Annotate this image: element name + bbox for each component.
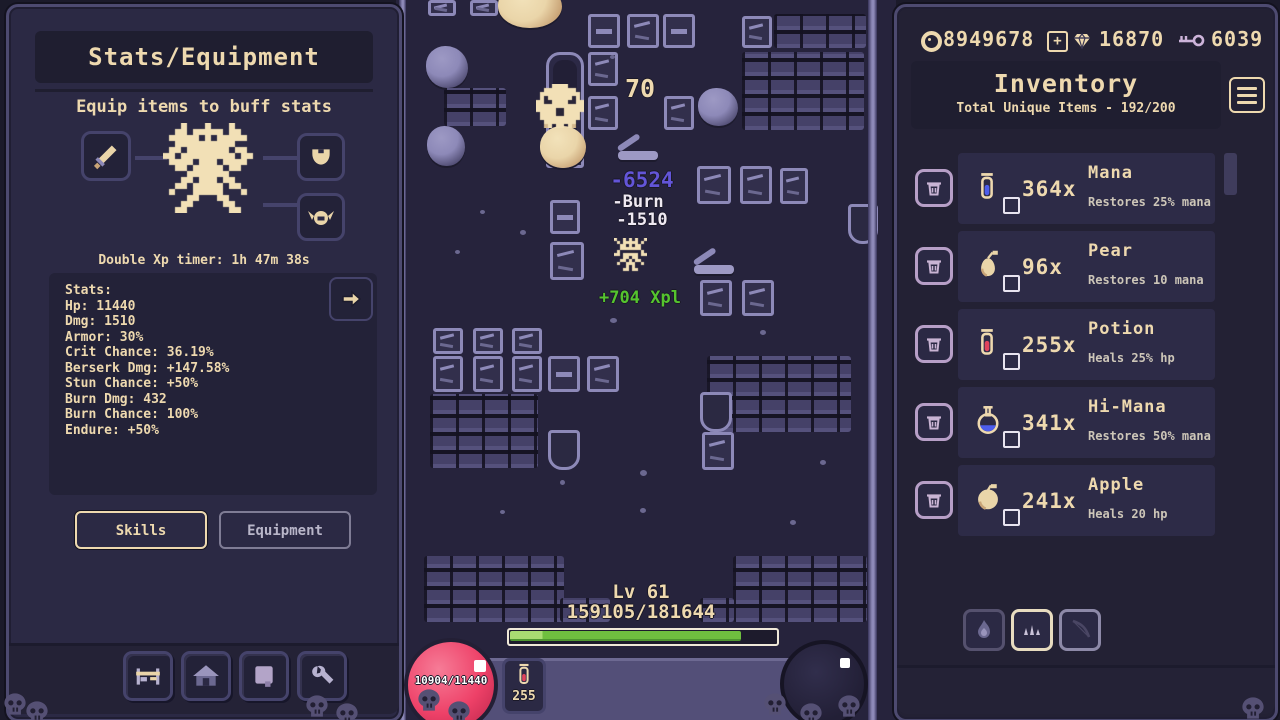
- tile-rockC: [498, 0, 562, 28]
- panel-title: Stats/Equipment: [35, 31, 373, 83]
- trash-item-button[interactable]: [915, 325, 953, 363]
- spikes-icon: [1020, 624, 1044, 636]
- inventory-item-row[interactable]: 241x Apple Heals 20 hp: [958, 465, 1215, 536]
- divider: [35, 89, 373, 92]
- tile-shield: [548, 430, 580, 470]
- skull-icon: [446, 700, 472, 720]
- stat-line: Berserk Dmg: +147.58%: [65, 361, 229, 377]
- tile-sign: [627, 14, 659, 48]
- tile-sign: [702, 432, 734, 470]
- sword-icon: [92, 142, 120, 170]
- tile-peb: [455, 250, 460, 254]
- tile-bar: [548, 356, 580, 392]
- keys-value: 6039: [1211, 27, 1263, 51]
- village-menu-button[interactable]: [181, 651, 231, 701]
- tile-peb: [560, 480, 565, 485]
- tile-cat: [694, 246, 734, 274]
- stats-equipment-panel: Stats/Equipment Equip items to buff stat…: [6, 4, 402, 720]
- orb-sparkle: [840, 658, 850, 668]
- key-icon: [1177, 33, 1205, 48]
- potion-count: 255: [505, 689, 543, 704]
- panel-bottom-strip: [897, 668, 1275, 714]
- trash-item-button[interactable]: [915, 169, 953, 207]
- tile-sign: [700, 280, 732, 316]
- tile-rockP: [426, 46, 468, 88]
- tile-sign: [512, 356, 542, 392]
- trash-icon: [924, 490, 944, 510]
- coins-value: 8949678: [943, 27, 1034, 51]
- inventory-item-row[interactable]: 364x Mana Restores 25% mana: [958, 153, 1215, 224]
- item-count: 96x: [1022, 255, 1063, 279]
- tile-sign: [428, 0, 456, 16]
- chestplate-icon: [308, 146, 334, 168]
- player-character-sprite: [163, 123, 259, 213]
- skull-icon: [334, 702, 360, 720]
- item-count: 241x: [1022, 489, 1077, 513]
- item-description: Heals 20 hp: [1088, 507, 1167, 521]
- item-auto-use-checkbox[interactable]: [1003, 509, 1020, 526]
- potion-icon: [515, 661, 533, 687]
- connector-line: [263, 156, 297, 160]
- skull-icon: [24, 700, 50, 720]
- panel-title-band: Stats/Equipment: [35, 31, 373, 83]
- item-name: Mana: [1088, 163, 1133, 183]
- potion-icon: [975, 327, 1001, 359]
- book-icon: [251, 663, 277, 689]
- house-icon: [192, 663, 220, 689]
- pear-icon: [975, 249, 1001, 281]
- tile-bar: [588, 14, 620, 48]
- inventory-title: Inventory: [911, 69, 1221, 98]
- stats-box: Stats:Hp: 11440Dmg: 1510Armor: 30%Crit C…: [49, 273, 377, 495]
- item-name: Hi-Mana: [1088, 397, 1167, 417]
- crit-damage-text: -6524: [610, 168, 673, 192]
- trash-icon: [924, 334, 944, 354]
- winged-helm-icon: [307, 206, 335, 228]
- tile-peb: [610, 55, 615, 59]
- bench-icon: [134, 663, 162, 689]
- item-auto-use-checkbox[interactable]: [1003, 431, 1020, 448]
- add-currency-button[interactable]: +: [1047, 31, 1068, 52]
- tile-rockC: [540, 126, 586, 168]
- tile-rockP: [698, 88, 738, 126]
- item-auto-use-checkbox[interactable]: [1003, 197, 1020, 214]
- stat-line: Stats:: [65, 283, 229, 299]
- tile-cat: [618, 132, 658, 160]
- gems-value: 16870: [1099, 27, 1164, 51]
- item-count: 255x: [1022, 333, 1077, 357]
- skull-icon: [1240, 696, 1266, 720]
- tile-peb: [790, 520, 796, 525]
- tile-sign: [742, 16, 772, 48]
- tile-peb: [640, 470, 647, 476]
- stat-line: Armor: 30%: [65, 330, 229, 346]
- trash-item-button[interactable]: [915, 247, 953, 285]
- inventory-item-row[interactable]: 341x Hi-Mana Restores 50% mana: [958, 387, 1215, 458]
- stat-line: Crit Chance: 36.19%: [65, 345, 229, 361]
- tile-rockP: [427, 126, 465, 166]
- stats-expand-button[interactable]: [329, 277, 373, 321]
- trash-icon: [924, 256, 944, 276]
- helmet-slot-button[interactable]: [297, 193, 345, 241]
- gem-icon: [1073, 33, 1091, 49]
- item-description: Restores 50% mana: [1088, 429, 1211, 443]
- inventory-scrollbar[interactable]: [1224, 153, 1237, 195]
- item-name: Pear: [1088, 241, 1133, 261]
- tile-bricks: [430, 394, 538, 468]
- tile-sign: [588, 96, 618, 130]
- enemy-hp-number: 70: [625, 74, 655, 103]
- journal-menu-button[interactable]: [239, 651, 289, 701]
- burn-label-text: -Burn: [612, 192, 663, 212]
- game-screen: 70 -6524 -Burn -1510 +704 Xpl Lv 61 1591…: [0, 0, 1280, 720]
- armor-slot-button[interactable]: [297, 133, 345, 181]
- skull-icon: [836, 694, 862, 720]
- trash-item-button[interactable]: [915, 403, 953, 441]
- apple-icon: [975, 483, 1001, 515]
- stat-line: Dmg: 1510: [65, 314, 229, 330]
- xp-progress-bar: [507, 628, 779, 646]
- skill-bow-button[interactable]: [1059, 609, 1101, 651]
- tile-sign: [550, 242, 584, 280]
- tile-peb: [500, 510, 505, 514]
- skill-flame-button[interactable]: [963, 609, 1005, 651]
- skull-icon: [762, 692, 788, 720]
- inventory-subtitle: Total Unique Items - 192/200: [911, 101, 1221, 116]
- tile-bar: [663, 14, 695, 48]
- burn-damage-text: -1510: [616, 210, 667, 230]
- inventory-panel: 8949678 + 16870 6039 Inventory Total Uni…: [894, 4, 1278, 720]
- tile-bricks: [742, 52, 864, 130]
- tile-sign: [780, 168, 808, 204]
- tile-sign: [433, 356, 463, 392]
- tile-peb: [520, 230, 526, 235]
- tile-peb: [640, 508, 646, 513]
- tile-peb: [820, 460, 826, 465]
- tile-sign: [742, 280, 774, 316]
- tile-sign: [433, 328, 463, 354]
- mana-vial-icon: [975, 171, 1001, 203]
- currency-bar: 8949678 + 16870 6039: [897, 25, 1275, 55]
- stat-line: Endure: +50%: [65, 423, 229, 439]
- stats-text: Stats:Hp: 11440Dmg: 1510Armor: 30%Crit C…: [65, 283, 229, 438]
- stat-line: Hp: 11440: [65, 299, 229, 315]
- skill-spikes-button[interactable]: [1011, 609, 1053, 651]
- skull-icon: [798, 702, 824, 720]
- equipment-tab-button[interactable]: Equipment: [219, 511, 351, 549]
- trash-item-button[interactable]: [915, 481, 953, 519]
- hi-mana-flask-icon: [975, 405, 1001, 437]
- tile-bar: [550, 200, 580, 234]
- xp-progress-fill: [510, 631, 741, 641]
- connector-line: [263, 203, 297, 207]
- double-xp-timer: Double Xp timer: 1h 47m 38s: [9, 253, 399, 268]
- tile-bricks: [424, 556, 564, 622]
- potion-quickslot-button[interactable]: 255: [502, 658, 546, 714]
- stat-line: Burn Chance: 100%: [65, 407, 229, 423]
- item-auto-use-checkbox[interactable]: [1003, 275, 1020, 292]
- xp-progress-text: 159105/181644: [567, 601, 716, 623]
- tile-peb: [480, 210, 485, 214]
- item-description: Heals 25% hp: [1088, 351, 1175, 365]
- tile-bricks: [733, 556, 867, 622]
- tile-sign: [473, 328, 503, 354]
- right-pillar: [868, 0, 877, 720]
- bow-icon: [1068, 618, 1092, 642]
- item-count: 364x: [1022, 177, 1077, 201]
- item-count: 341x: [1022, 411, 1077, 435]
- stat-line: Burn Dmg: 432: [65, 392, 229, 408]
- tile-sign: [512, 328, 542, 354]
- tile-bricks: [444, 88, 506, 126]
- item-name: Potion: [1088, 319, 1155, 339]
- coin-icon: [921, 31, 942, 52]
- arrow-right-icon: [339, 287, 363, 311]
- ghost-enemy: [536, 84, 584, 128]
- skills-tab-button[interactable]: Skills: [75, 511, 207, 549]
- weapon-slot-button[interactable]: [81, 131, 131, 181]
- tile-sign: [473, 356, 503, 392]
- tile-peb: [760, 330, 766, 335]
- item-auto-use-checkbox[interactable]: [1003, 353, 1020, 370]
- tile-shield: [700, 392, 732, 432]
- orb-sparkle: [474, 660, 486, 672]
- xp-gain-text: +704 Xpl: [599, 288, 681, 308]
- inventory-header-band: Inventory Total Unique Items - 192/200: [911, 61, 1221, 129]
- tile-sign: [697, 166, 731, 204]
- inventory-menu-button[interactable]: [1229, 77, 1265, 113]
- game-viewport[interactable]: 70 -6524 -Burn -1510 +704 Xpl Lv 61 1591…: [396, 0, 896, 720]
- skull-icon: [304, 694, 330, 720]
- tile-sign: [740, 166, 772, 204]
- equip-hint-text: Equip items to buff stats: [9, 97, 399, 117]
- flame-icon: [974, 618, 994, 642]
- item-name: Apple: [1088, 475, 1144, 495]
- bench-menu-button[interactable]: [123, 651, 173, 701]
- tile-sign: [587, 356, 619, 392]
- hp-orb-value: 10904/11440: [408, 674, 494, 687]
- tile-peb: [610, 318, 617, 323]
- tile-sign: [470, 0, 498, 16]
- tile-bricks: [774, 14, 866, 48]
- inventory-item-row[interactable]: 255x Potion Heals 25% hp: [958, 309, 1215, 380]
- item-description: Restores 10 mana: [1088, 273, 1204, 287]
- tile-sign: [664, 96, 694, 130]
- item-description: Restores 25% mana: [1088, 195, 1211, 209]
- skeleton-enemy: [614, 238, 647, 274]
- inventory-item-row[interactable]: 96x Pear Restores 10 mana: [958, 231, 1215, 302]
- wrench-icon: [309, 663, 335, 689]
- trash-icon: [924, 178, 944, 198]
- skull-icon: [416, 688, 442, 716]
- trash-icon: [924, 412, 944, 432]
- stat-line: Stun Chance: +50%: [65, 376, 229, 392]
- level-label: Lv 61: [612, 581, 669, 603]
